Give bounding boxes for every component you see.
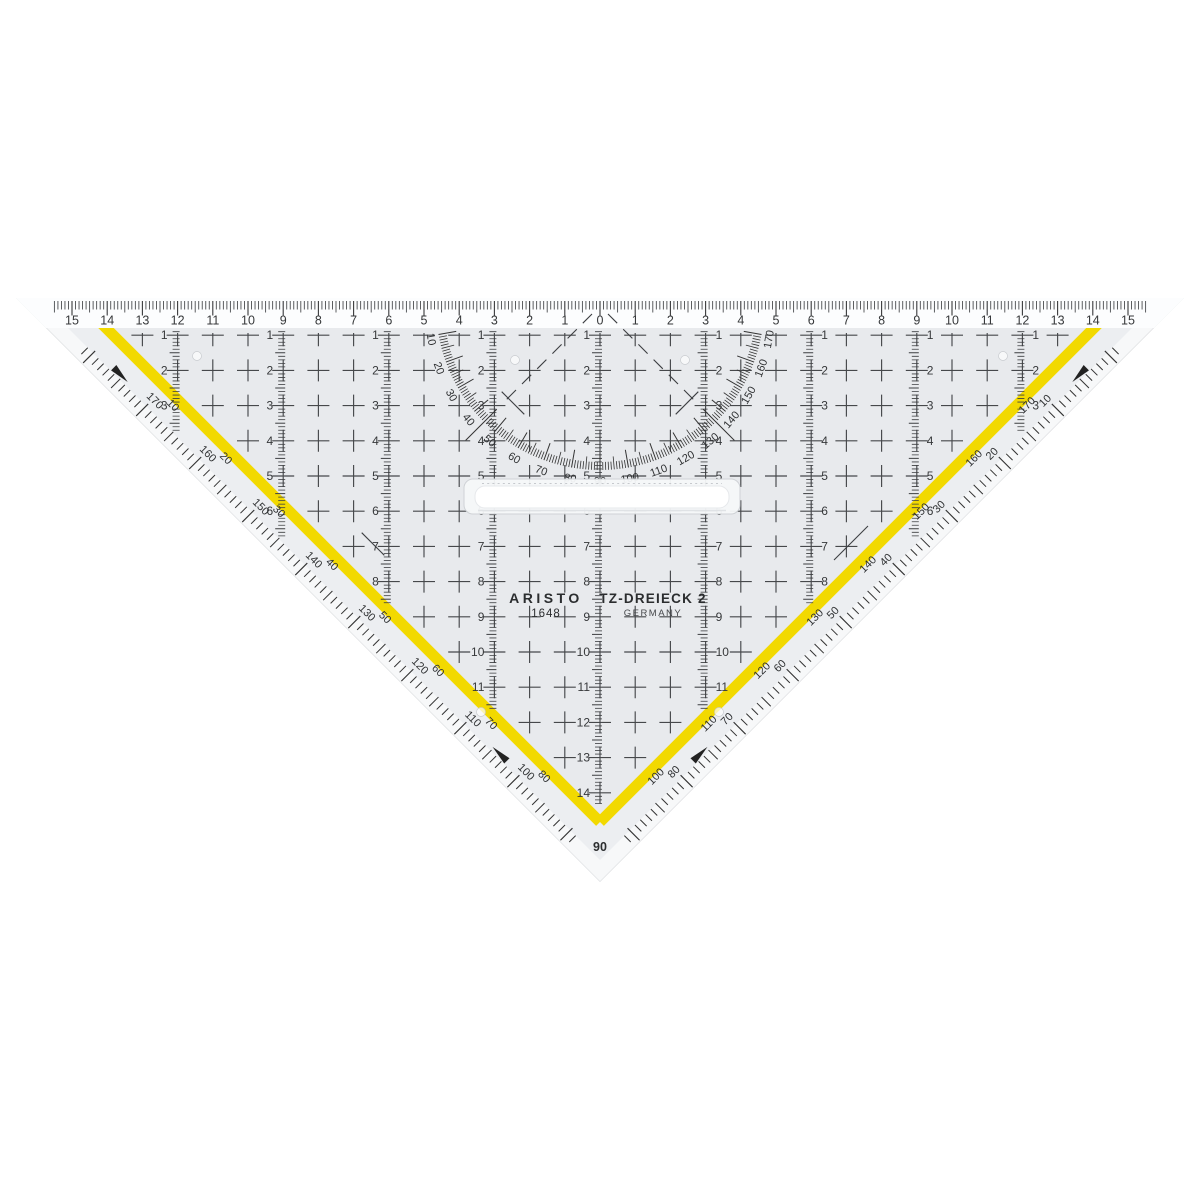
row-number: 8 bbox=[716, 575, 723, 589]
cm-number: 15 bbox=[1121, 314, 1135, 328]
model-label: 1648 bbox=[531, 608, 561, 620]
cm-number: 6 bbox=[385, 314, 392, 328]
row-number: 10 bbox=[577, 645, 591, 659]
cm-number: 11 bbox=[206, 314, 219, 328]
row-number: 1 bbox=[716, 328, 723, 342]
cm-number: 14 bbox=[100, 314, 114, 328]
row-number: 3 bbox=[927, 399, 934, 413]
row-number: 7 bbox=[372, 539, 379, 553]
grip-handle bbox=[464, 479, 740, 514]
row-number: 2 bbox=[927, 363, 934, 377]
cm-number: 10 bbox=[241, 314, 255, 328]
cm-number: 2 bbox=[526, 314, 533, 328]
row-number: 14 bbox=[577, 786, 591, 800]
product-photo-stage: 1514131211109876543210123456789101112131… bbox=[0, 0, 1200, 1200]
row-number: 1 bbox=[372, 328, 379, 342]
cm-number: 12 bbox=[1015, 314, 1029, 328]
row-number: 8 bbox=[372, 575, 379, 589]
row-number: 3 bbox=[583, 399, 590, 413]
row-number: 3 bbox=[267, 399, 274, 413]
cm-number: 3 bbox=[491, 314, 498, 328]
row-number: 2 bbox=[478, 363, 485, 377]
row-number: 4 bbox=[927, 434, 934, 448]
row-number: 4 bbox=[372, 434, 379, 448]
row-number: 5 bbox=[927, 469, 934, 483]
vertex-degree-label: 90 bbox=[593, 840, 607, 854]
row-number: 12 bbox=[577, 715, 591, 729]
row-number: 5 bbox=[372, 469, 379, 483]
row-number: 2 bbox=[716, 363, 723, 377]
cm-number: 11 bbox=[981, 314, 994, 328]
dimple bbox=[715, 708, 724, 717]
cm-number: 15 bbox=[65, 314, 79, 328]
row-number: 7 bbox=[821, 539, 828, 553]
country-label: GERMANY bbox=[624, 608, 683, 619]
cm-number: 14 bbox=[1086, 314, 1100, 328]
row-number: 13 bbox=[577, 751, 591, 765]
cm-number: 12 bbox=[171, 314, 185, 328]
cm-number: 13 bbox=[135, 314, 149, 328]
brand-label: ARISTO bbox=[509, 590, 583, 606]
cm-number: 7 bbox=[350, 314, 357, 328]
row-number: 10 bbox=[716, 645, 730, 659]
row-number: 6 bbox=[372, 504, 379, 518]
cm-number: 10 bbox=[945, 314, 959, 328]
row-number: 11 bbox=[472, 680, 485, 694]
row-number: 1 bbox=[821, 328, 828, 342]
row-number: 5 bbox=[267, 469, 274, 483]
dimple bbox=[681, 356, 690, 365]
cm-number: 1 bbox=[632, 314, 639, 328]
cm-number: 2 bbox=[667, 314, 674, 328]
dimple bbox=[511, 356, 520, 365]
dimple bbox=[477, 708, 486, 717]
cm-number: 9 bbox=[280, 314, 287, 328]
row-number: 8 bbox=[583, 575, 590, 589]
dimple bbox=[193, 352, 202, 361]
cm-number: 7 bbox=[843, 314, 850, 328]
dimple bbox=[999, 352, 1008, 361]
row-number: 9 bbox=[716, 610, 723, 624]
row-number: 4 bbox=[583, 434, 590, 448]
row-number: 7 bbox=[583, 539, 590, 553]
row-number: 5 bbox=[821, 469, 828, 483]
cm-number: 1 bbox=[561, 314, 568, 328]
cm-number: 13 bbox=[1051, 314, 1065, 328]
row-number: 11 bbox=[578, 680, 591, 694]
row-number: 1 bbox=[583, 328, 590, 342]
tz-triangle-set-square: 1514131211109876543210123456789101112131… bbox=[0, 0, 1200, 1200]
row-number: 9 bbox=[583, 610, 590, 624]
product-name-label: TZ-DREIECK 2 bbox=[599, 591, 706, 606]
handle-bar bbox=[475, 486, 729, 508]
row-number: 10 bbox=[471, 645, 485, 659]
row-number: 2 bbox=[1032, 363, 1039, 377]
row-number: 9 bbox=[478, 610, 485, 624]
cm-number: 5 bbox=[773, 314, 780, 328]
cm-number: 8 bbox=[315, 314, 322, 328]
protractor-number: 10 bbox=[424, 332, 438, 346]
row-number: 4 bbox=[267, 434, 274, 448]
row-number: 1 bbox=[927, 328, 934, 342]
row-number: 6 bbox=[821, 504, 828, 518]
cm-number: 4 bbox=[737, 314, 744, 328]
row-number: 3 bbox=[821, 399, 828, 413]
row-number: 7 bbox=[716, 539, 723, 553]
cm-number: 3 bbox=[702, 314, 709, 328]
row-number: 11 bbox=[716, 680, 729, 694]
row-number: 2 bbox=[372, 363, 379, 377]
row-number: 1 bbox=[478, 328, 485, 342]
row-number: 2 bbox=[583, 363, 590, 377]
row-number: 8 bbox=[821, 575, 828, 589]
row-number: 1 bbox=[161, 328, 168, 342]
cm-number: 0 bbox=[597, 314, 604, 328]
row-number: 7 bbox=[478, 539, 485, 553]
row-number: 1 bbox=[267, 328, 274, 342]
row-number: 3 bbox=[372, 399, 379, 413]
cm-number: 4 bbox=[456, 314, 463, 328]
row-number: 8 bbox=[478, 575, 485, 589]
cm-number: 6 bbox=[808, 314, 815, 328]
row-number: 2 bbox=[267, 363, 274, 377]
row-number: 4 bbox=[821, 434, 828, 448]
cm-number: 5 bbox=[421, 314, 428, 328]
row-number: 2 bbox=[161, 363, 168, 377]
row-number: 2 bbox=[821, 363, 828, 377]
cm-number: 8 bbox=[878, 314, 885, 328]
row-number: 1 bbox=[1032, 328, 1039, 342]
cm-number: 9 bbox=[913, 314, 920, 328]
